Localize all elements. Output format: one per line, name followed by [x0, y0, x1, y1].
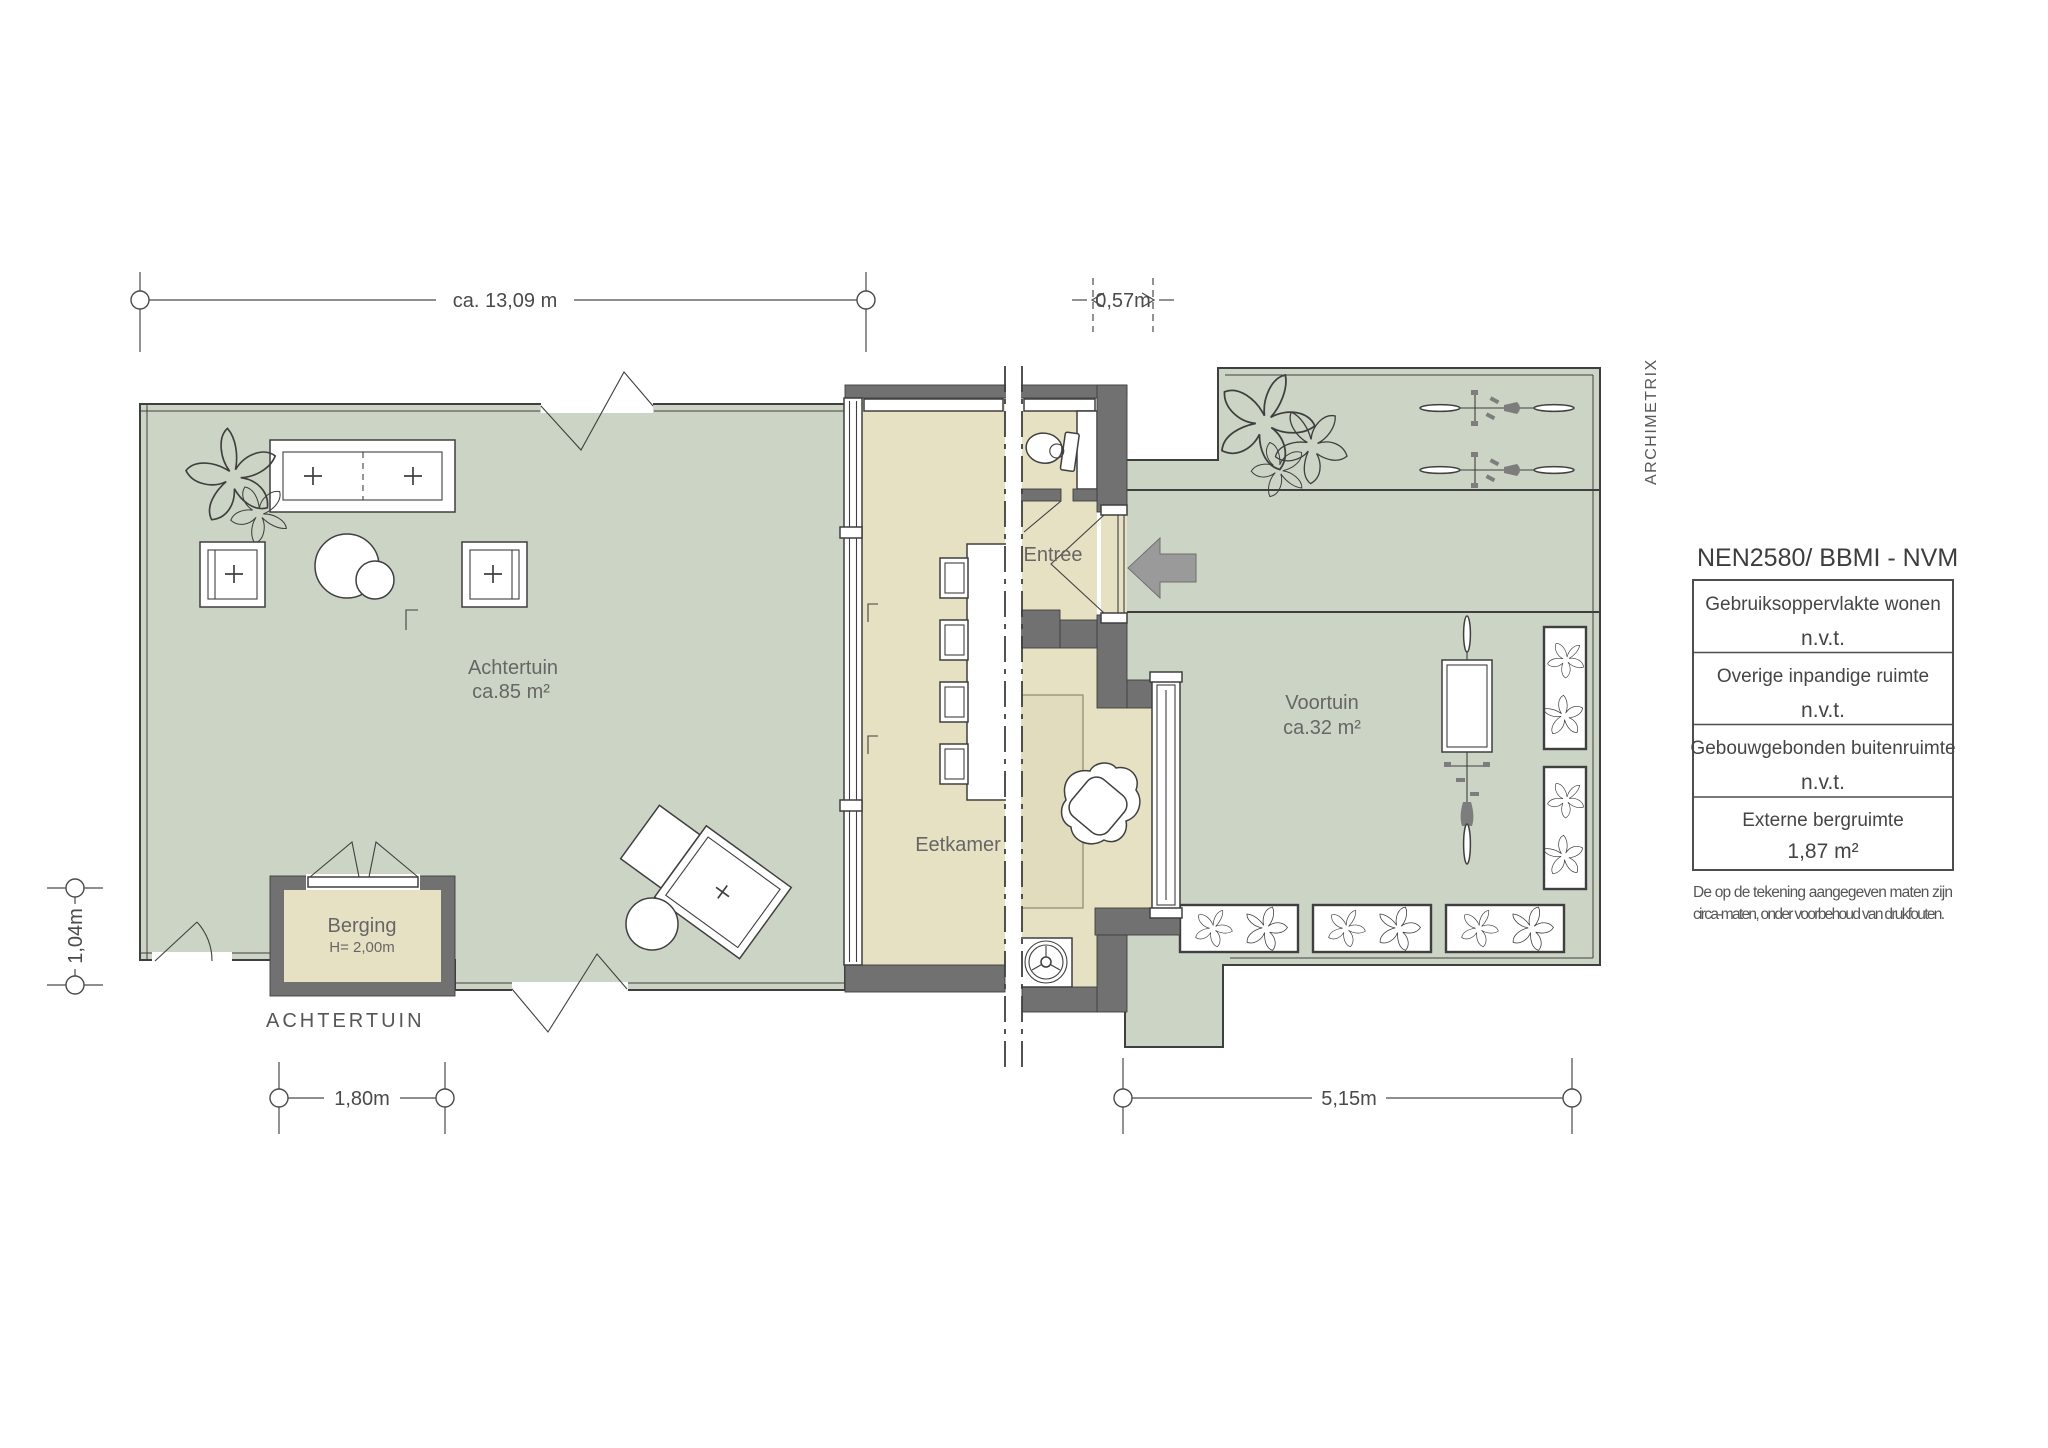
planter [1180, 898, 1298, 956]
label-voortuin: Voortuin [1285, 692, 1358, 714]
legend-panel: NEN2580/ BBMI - NVM Gebruiksoppervlakte … [1690, 544, 1958, 923]
svg-text:ca. 13,09 m: ca. 13,09 m [453, 290, 558, 312]
dimension-left-height: 1,04m [47, 879, 103, 994]
label-eetkamer: Eetkamer [915, 834, 1001, 856]
floorplan-page: Berging H= 2,00m Achtertuin ca.85 m² Voo… [0, 0, 2048, 1448]
planter [1540, 767, 1593, 889]
svg-text:Gebruiksoppervlakte wonen: Gebruiksoppervlakte wonen [1705, 594, 1941, 615]
svg-text:n.v.t.: n.v.t. [1801, 627, 1845, 650]
legend-disclaimer-line1: De op de tekening aangegeven maten zijn [1693, 884, 1953, 901]
caption-achtertuin: ACHTERTUIN [266, 1010, 425, 1032]
label-voortuin-area: ca.32 m² [1283, 717, 1361, 739]
dimension-voortuin-width: 5,15m [1114, 1058, 1581, 1134]
svg-text:Overige inpandige ruimte: Overige inpandige ruimte [1717, 666, 1929, 687]
garden-armchair-left [200, 542, 265, 607]
svg-text:1,80m: 1,80m [334, 1088, 390, 1110]
section-cut-line [1005, 366, 1022, 1070]
planter [1540, 627, 1593, 749]
svg-text:n.v.t.: n.v.t. [1801, 771, 1845, 794]
svg-text:1,04m: 1,04m [65, 908, 87, 964]
watermark-archimetrix: ARCHIMETRIX [1643, 358, 1660, 485]
planter [1446, 898, 1564, 956]
dimension-entry-offset: 0,57m [1072, 278, 1174, 332]
svg-text:1,87 m²: 1,87 m² [1787, 840, 1858, 863]
garden-sofa [270, 440, 455, 512]
legend-disclaimer-line2: circa-maten, onder voorbehoud van drukfo… [1693, 906, 1945, 923]
toilet-niche [1077, 411, 1097, 489]
top-window [1024, 399, 1095, 411]
side-table [626, 898, 678, 950]
dimension-top-width: ca. 13,09 m [131, 272, 875, 352]
svg-text:Gebouwgebonden buitenruimte: Gebouwgebonden buitenruimte [1690, 738, 1955, 759]
legend-title: NEN2580/ BBMI - NVM [1697, 544, 1958, 572]
eetkamer-window [1150, 672, 1182, 918]
label-achtertuin: Achtertuin [468, 657, 558, 679]
ventilation-fan-icon [1020, 938, 1072, 987]
label-entree: Entree [1024, 544, 1083, 566]
label-berging: Berging [328, 915, 397, 937]
top-window [864, 399, 1003, 411]
svg-text:5,15m: 5,15m [1321, 1088, 1377, 1110]
garden-armchair-right [462, 542, 527, 607]
label-achtertuin-area: ca.85 m² [472, 681, 550, 703]
label-berging-height: H= 2,00m [329, 939, 394, 956]
svg-text:Externe bergruimte: Externe bergruimte [1742, 810, 1904, 831]
dimension-berging-width: 1,80m [270, 1062, 454, 1134]
svg-text:n.v.t.: n.v.t. [1801, 699, 1845, 722]
coffee-table-small [356, 561, 394, 599]
svg-text:0,57m: 0,57m [1095, 290, 1151, 312]
planter [1313, 898, 1431, 956]
floorplan-drawing: Berging H= 2,00m Achtertuin ca.85 m² Voo… [0, 0, 2048, 1448]
